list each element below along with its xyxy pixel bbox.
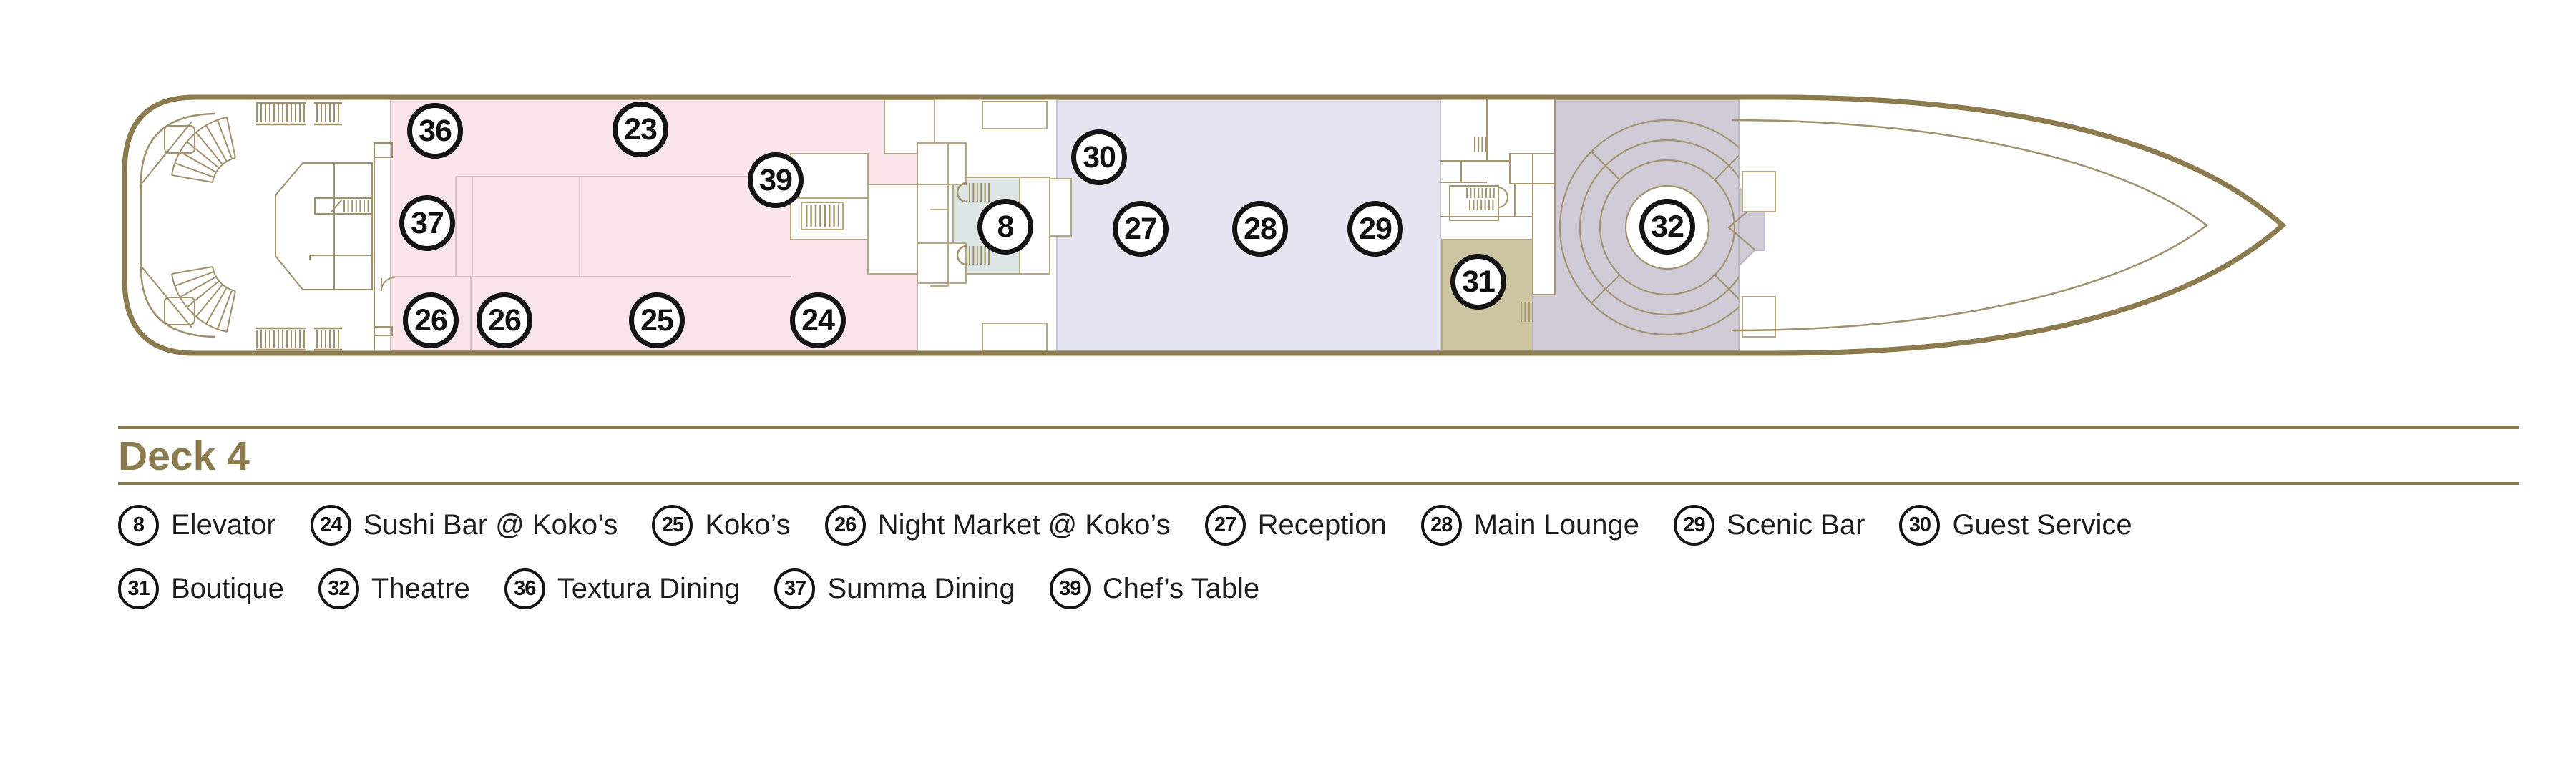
legend-marker-circle: 32 [318,568,359,609]
legend-marker-number: 37 [784,577,806,601]
legend-label: Textura Dining [557,573,741,605]
legend-label: Koko’s [705,509,790,541]
deck-marker-number: 39 [759,163,792,198]
legend: 8 Elevator 24 Sushi Bar @ Koko’s 25 Koko… [118,505,2132,609]
deck-marker-number: 28 [1244,212,1277,247]
legend-label: Night Market @ Koko’s [878,509,1171,541]
legend-marker-number: 39 [1059,577,1080,601]
deck-markers: 36 23 37 39 26 26 25 [0,0,2576,386]
deck-marker-number: 25 [640,303,673,338]
legend-marker-number: 28 [1430,513,1452,537]
deck-marker-number: 26 [488,303,521,338]
legend-item: 30 Guest Service [1899,505,2132,546]
legend-label: Scenic Bar [1727,509,1865,541]
legend-marker-circle: 28 [1421,505,1462,546]
legend-marker-circle: 36 [504,568,545,609]
legend-marker-number: 24 [320,513,341,537]
legend-marker-circle: 26 [825,505,866,546]
deck-marker-number: 37 [411,206,444,241]
deck-marker: 36 [407,103,463,159]
deck-marker: 30 [1071,129,1127,185]
legend-item: 27 Reception [1205,505,1387,546]
deck-marker: 37 [399,195,455,251]
legend-item: 25 Koko’s [652,505,790,546]
legend-marker-circle: 37 [774,568,815,609]
deck-marker-number: 23 [624,112,657,147]
deck-plan: 36 23 37 39 26 26 25 [0,0,2576,386]
deck-title: Deck 4 [118,435,2519,478]
legend-label: Sushi Bar @ Koko’s [364,509,618,541]
legend-marker-circle: 25 [652,505,693,546]
deck-marker-number: 24 [801,303,834,338]
deck-marker-number: 32 [1651,210,1684,245]
deck-marker-number: 36 [419,114,452,149]
deck-marker: 28 [1232,201,1288,257]
deck-marker-number: 27 [1124,212,1157,247]
legend-item: 24 Sushi Bar @ Koko’s [311,505,618,546]
legend-label: Boutique [171,573,284,605]
legend-label: Guest Service [1952,509,2132,541]
legend-item: 8 Elevator [118,505,276,546]
deck-marker: 39 [748,152,804,208]
deck-marker: 25 [629,292,685,348]
deck-marker: 26 [477,292,532,348]
legend-marker-number: 32 [328,577,349,601]
deck-marker: 29 [1347,201,1403,257]
deck-marker-number: 29 [1359,212,1392,247]
legend-marker-number: 26 [834,513,856,537]
legend-marker-circle: 31 [118,568,159,609]
legend-item: 36 Textura Dining [504,568,741,609]
legend-item: 39 Chef’s Table [1050,568,1259,609]
legend-row-2: 31 Boutique 32 Theatre 36 Textura Dining… [118,568,2132,609]
legend-label: Main Lounge [1474,509,1639,541]
legend-item: 32 Theatre [318,568,470,609]
legend-marker-circle: 29 [1674,505,1714,546]
deck-marker-number: 26 [414,303,447,338]
legend-marker-number: 29 [1683,513,1704,537]
legend-marker-number: 27 [1214,513,1236,537]
deck-marker: 23 [613,102,668,157]
deck-marker-number: 30 [1083,140,1116,175]
legend-marker-circle: 27 [1205,505,1246,546]
legend-row-1: 8 Elevator 24 Sushi Bar @ Koko’s 25 Koko… [118,505,2132,546]
legend-label: Theatre [371,573,470,605]
deck-marker: 31 [1450,254,1506,310]
legend-item: 37 Summa Dining [774,568,1015,609]
legend-marker-circle: 30 [1899,505,1940,546]
deck-marker: 32 [1639,199,1695,255]
deck-marker: 24 [790,292,846,348]
legend-marker-circle: 24 [311,505,351,546]
legend-marker-circle: 8 [118,505,159,546]
legend-marker-number: 31 [127,577,149,601]
legend-item: 31 Boutique [118,568,284,609]
legend-label: Elevator [171,509,276,541]
deck-marker: 8 [977,199,1033,255]
legend-marker-number: 25 [662,513,683,537]
legend-marker-circle: 39 [1050,568,1091,609]
deck-marker-number: 31 [1462,265,1495,300]
legend-label: Chef’s Table [1103,573,1259,605]
legend-marker-number: 8 [133,513,144,537]
deck-marker: 27 [1113,201,1169,257]
legend-item: 26 Night Market @ Koko’s [825,505,1171,546]
legend-label: Summa Dining [827,573,1015,605]
deck-marker: 26 [403,292,459,348]
legend-marker-number: 36 [514,577,535,601]
legend-item: 28 Main Lounge [1421,505,1639,546]
legend-item: 29 Scenic Bar [1674,505,1865,546]
legend-label: Reception [1258,509,1387,541]
deck-marker-number: 8 [997,210,1014,245]
legend-marker-number: 30 [1909,513,1931,537]
deck-title-block: Deck 4 [118,426,2519,485]
